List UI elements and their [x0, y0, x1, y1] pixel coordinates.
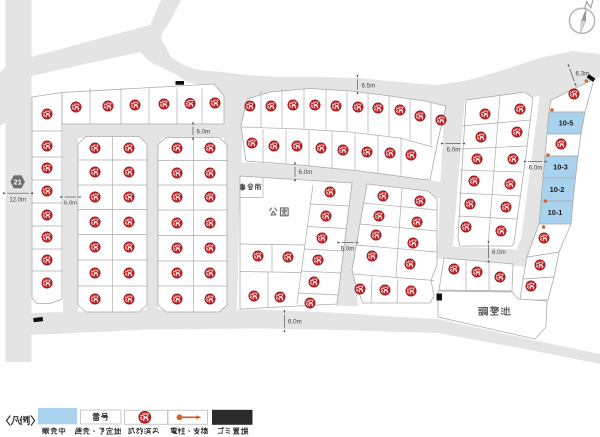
svg-text:6.0m: 6.0m — [197, 129, 211, 136]
svg-text:6.0m: 6.0m — [492, 249, 506, 256]
svg-text:10-1: 10-1 — [548, 208, 563, 217]
svg-text:6.0m: 6.0m — [288, 319, 302, 326]
svg-text:21: 21 — [14, 178, 22, 187]
svg-text:6.0m: 6.0m — [529, 165, 543, 172]
svg-text:10-3: 10-3 — [553, 163, 568, 172]
svg-text:6.0m: 6.0m — [64, 201, 77, 207]
svg-text:12.0m: 12.0m — [9, 198, 26, 204]
svg-text:6.0m: 6.0m — [299, 169, 313, 176]
svg-text:6.0m: 6.0m — [341, 246, 355, 253]
svg-text:6.0m: 6.0m — [447, 147, 461, 154]
svg-text:6.3m: 6.3m — [576, 71, 590, 78]
svg-text:10-2: 10-2 — [550, 185, 565, 194]
svg-text:6.5m: 6.5m — [362, 83, 376, 90]
svg-text:10-5: 10-5 — [559, 119, 574, 128]
